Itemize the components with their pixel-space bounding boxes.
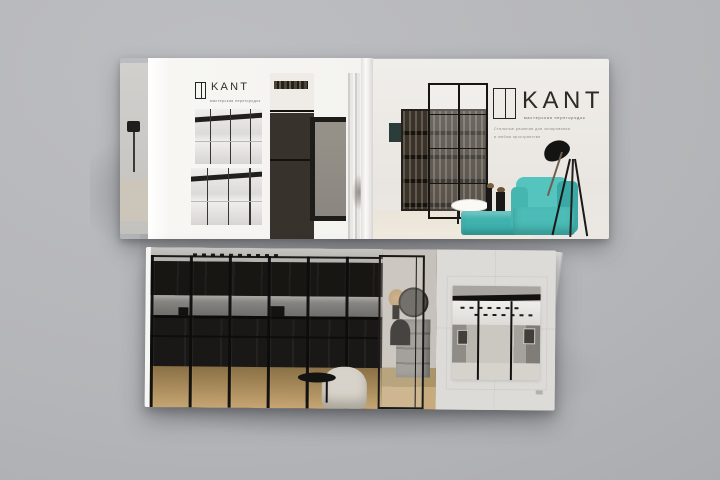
wardrobe-partition-photo-bottom xyxy=(191,168,262,225)
inset-room-photo xyxy=(452,286,541,381)
black-side-table xyxy=(298,372,336,382)
spread-spine xyxy=(361,58,373,239)
kitchen-behind-glass-partition-photo xyxy=(150,247,437,409)
sofa xyxy=(120,179,150,221)
framed-picture xyxy=(523,328,535,344)
page-logo-mark xyxy=(536,390,543,394)
floor xyxy=(452,363,540,381)
floor-lamp-stem xyxy=(133,132,135,172)
catalog-top-page xyxy=(145,247,556,411)
brand-wordmark: KANT xyxy=(522,89,604,113)
cover-tagline-1: Стильные решения для зонирования xyxy=(494,127,570,132)
dark-bookshelf xyxy=(270,73,314,239)
shelf-line xyxy=(270,159,314,161)
shelf-line xyxy=(270,110,314,112)
closed-catalog xyxy=(145,247,558,413)
brand-wordmark: KANT xyxy=(211,82,249,93)
door-mullion xyxy=(414,257,417,407)
door-panel-icon xyxy=(493,88,516,119)
side-table-leg xyxy=(306,380,308,402)
books-row xyxy=(274,81,308,89)
underlying-page-edge xyxy=(120,63,150,234)
open-brochure-spread: KANT мастерская перегородок xyxy=(120,58,609,239)
side-table-leg xyxy=(326,381,328,403)
left-page: KANT мастерская перегородок xyxy=(148,58,361,239)
kant-logo-small: KANT xyxy=(195,82,249,99)
floor-lamp-shade xyxy=(127,121,140,132)
cover-tagline-2: в любом пространстве xyxy=(494,135,541,140)
teal-armchair-seat xyxy=(513,207,575,235)
sliding-glass-door xyxy=(378,255,425,409)
wardrobe-partition-photo-top xyxy=(195,109,262,164)
glass-partition xyxy=(428,83,488,219)
ceiling xyxy=(452,301,540,326)
brand-subtitle: мастерская перегородок xyxy=(210,99,261,104)
catalog-right-page xyxy=(436,250,556,411)
mockup-scene: KANT мастерская перегородок xyxy=(0,0,720,480)
cover-page: KANT мастерская перегородок Стильные реш… xyxy=(373,59,609,239)
brand-subtitle: мастерская перегородок xyxy=(524,116,586,121)
door-panel-icon xyxy=(195,82,206,99)
chair-silhouette xyxy=(390,319,410,345)
partition-rail xyxy=(150,335,382,339)
framed-picture xyxy=(457,330,468,345)
